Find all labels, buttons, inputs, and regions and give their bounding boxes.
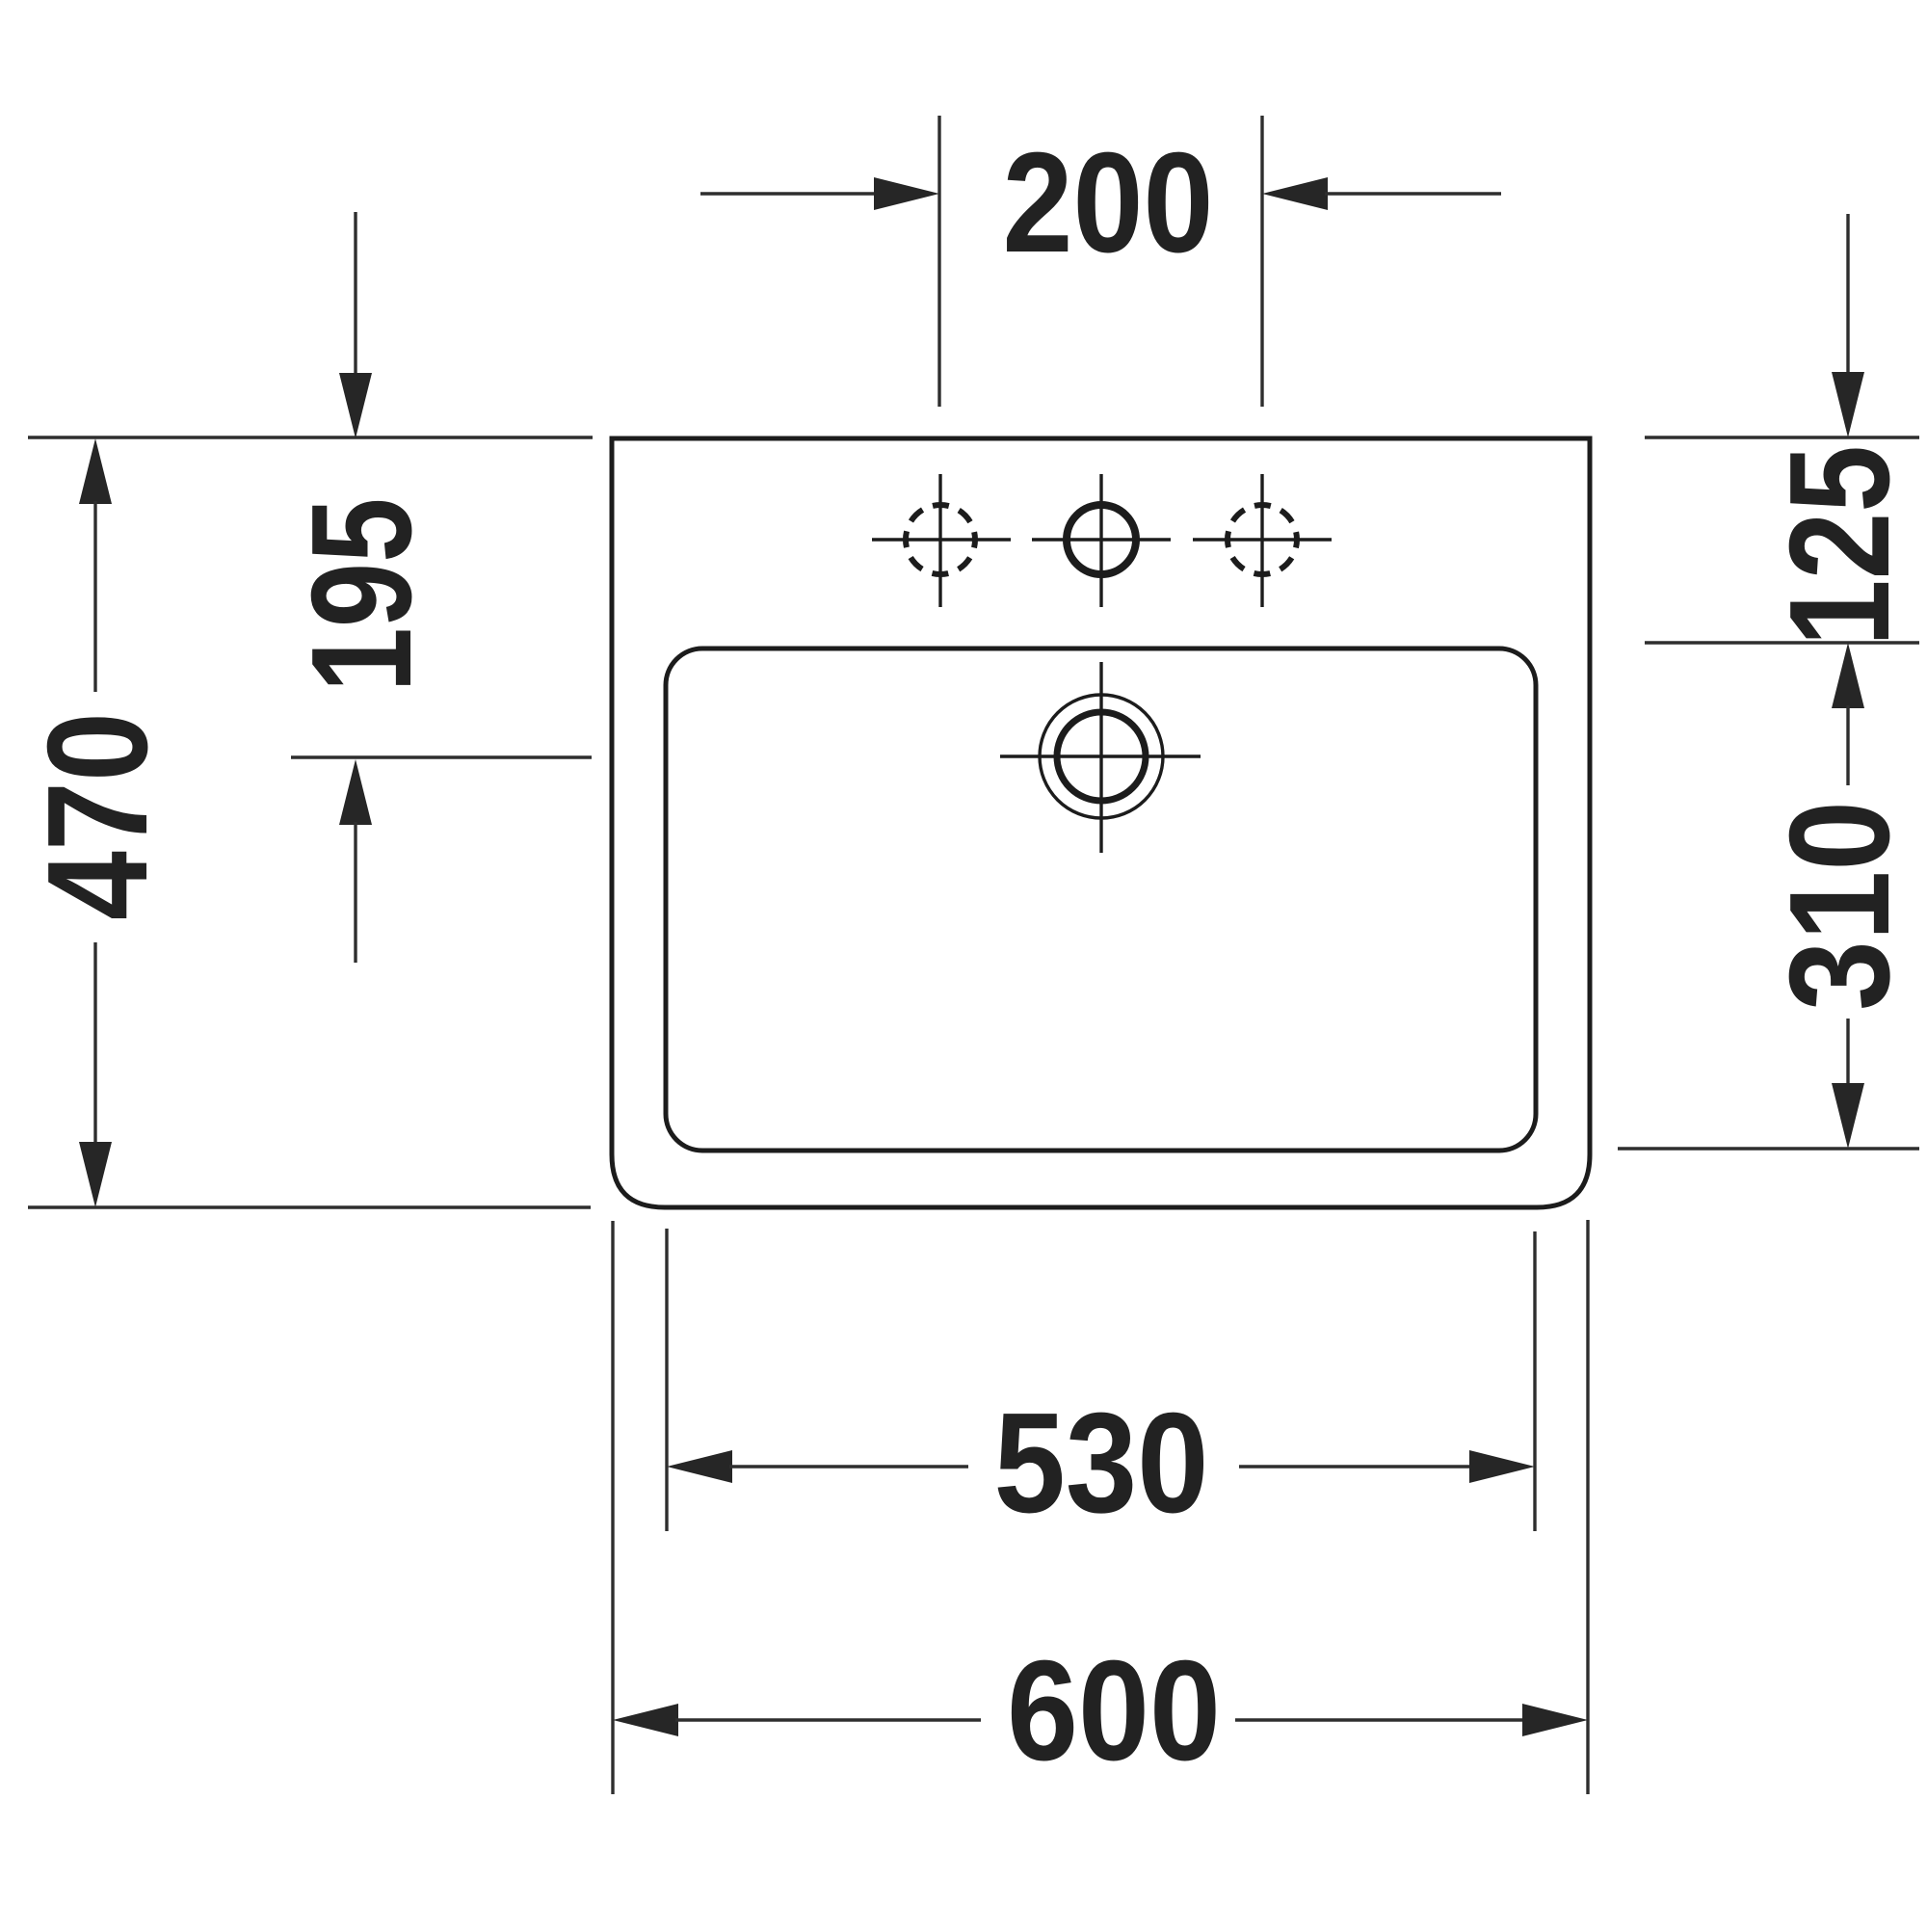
svg-text:600: 600 [1007,1631,1221,1790]
svg-text:470: 470 [18,712,177,920]
svg-text:310: 310 [1760,801,1919,1011]
svg-text:200: 200 [1003,123,1214,282]
svg-text:195: 195 [282,498,441,693]
svg-text:530: 530 [994,1384,1209,1543]
svg-text:125: 125 [1760,445,1919,647]
